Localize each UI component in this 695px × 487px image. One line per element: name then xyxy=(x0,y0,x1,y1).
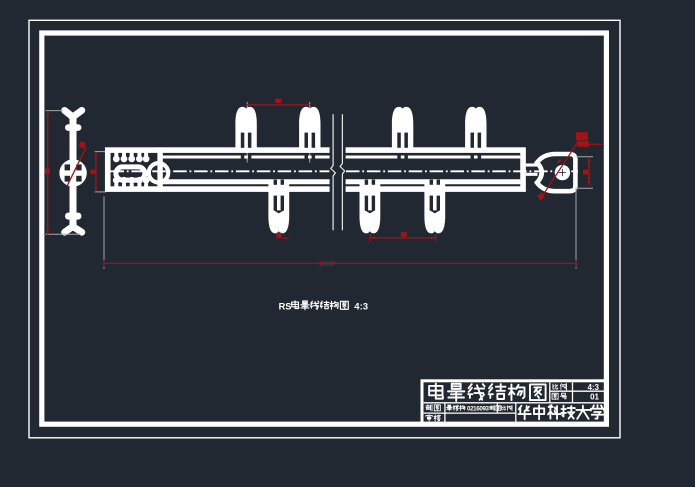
svg-text:01: 01 xyxy=(590,392,599,401)
svg-text:0216093: 0216093 xyxy=(467,406,490,413)
svg-text:RS: RS xyxy=(279,301,292,311)
svg-text:4:3: 4:3 xyxy=(354,301,368,312)
svg-text:4:3: 4:3 xyxy=(587,383,599,392)
svg-text:1000: 1000 xyxy=(318,259,334,268)
